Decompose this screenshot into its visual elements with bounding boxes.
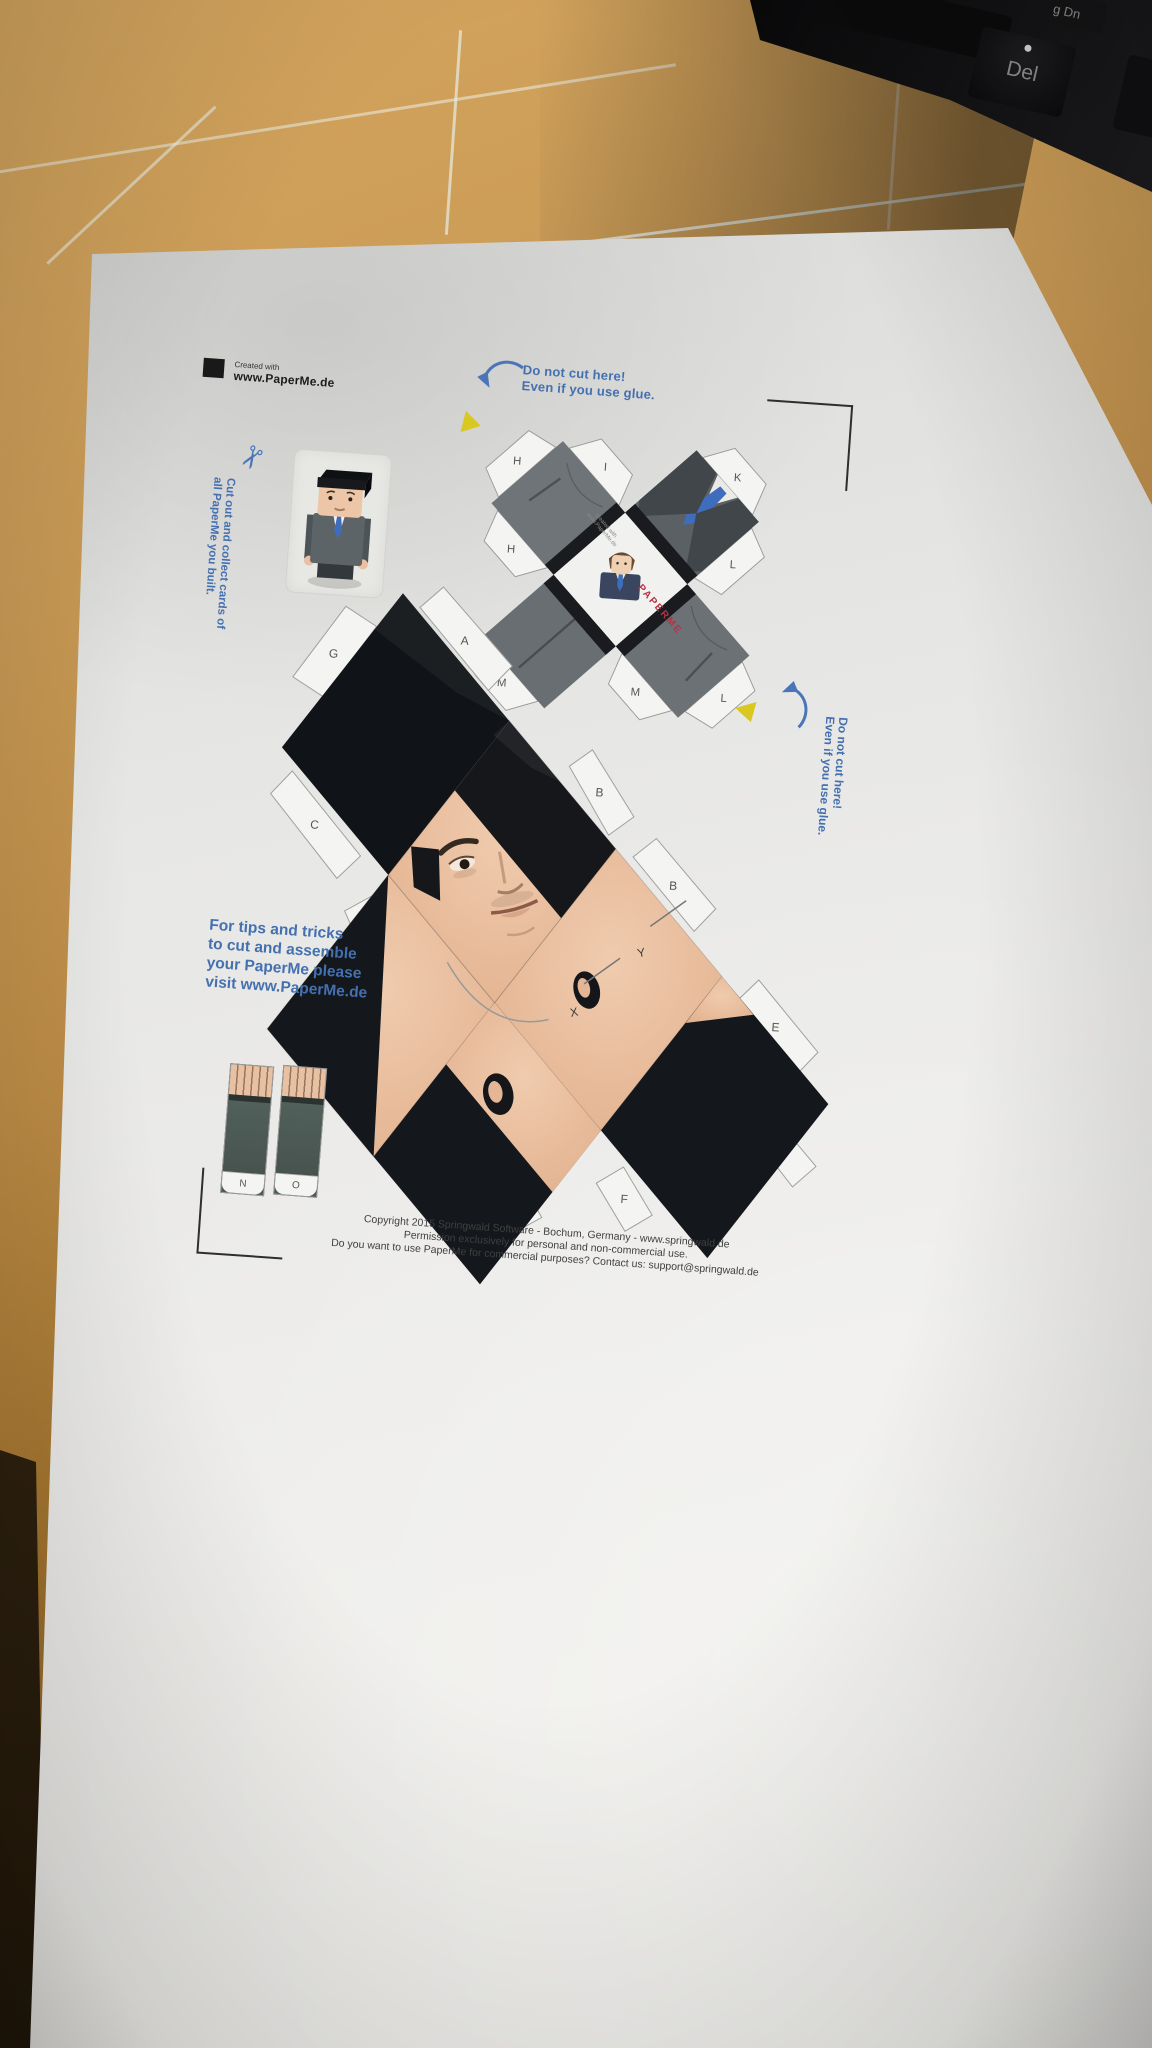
tab-letter: C [310, 817, 320, 832]
sleeve-graphic [276, 1102, 323, 1176]
tab-letter: F [620, 1192, 628, 1206]
tab-letter: G [328, 646, 338, 661]
tab-letter: A [460, 633, 469, 648]
keyboard-key-pgdn-label: g Dn [1052, 1, 1082, 22]
sleeve-graphic [223, 1100, 270, 1174]
keyboard-key-del-label: Del [1004, 57, 1040, 87]
tab-letter: E [771, 1020, 780, 1035]
crop-mark-top-right [761, 399, 853, 491]
printed-template: Created with www.PaperMe.de Do not cut h… [73, 340, 1048, 1500]
keyboard-key-partial [1112, 54, 1152, 142]
keyboard-led-dot [1024, 44, 1032, 52]
tips-note: For tips and tricks to cut and assemble … [205, 916, 372, 1003]
tab-letter: O [292, 1179, 301, 1191]
hand-graphic [282, 1066, 326, 1099]
tab-letter: B [595, 785, 604, 800]
mat-grid-line [445, 30, 462, 235]
keyboard-key-del: Del [967, 26, 1077, 118]
mat-angle-line [46, 106, 216, 265]
keyboard-key-pgdn: g Dn [1026, 0, 1109, 34]
hand-graphic [229, 1064, 273, 1097]
tab-letter: B [669, 879, 678, 894]
